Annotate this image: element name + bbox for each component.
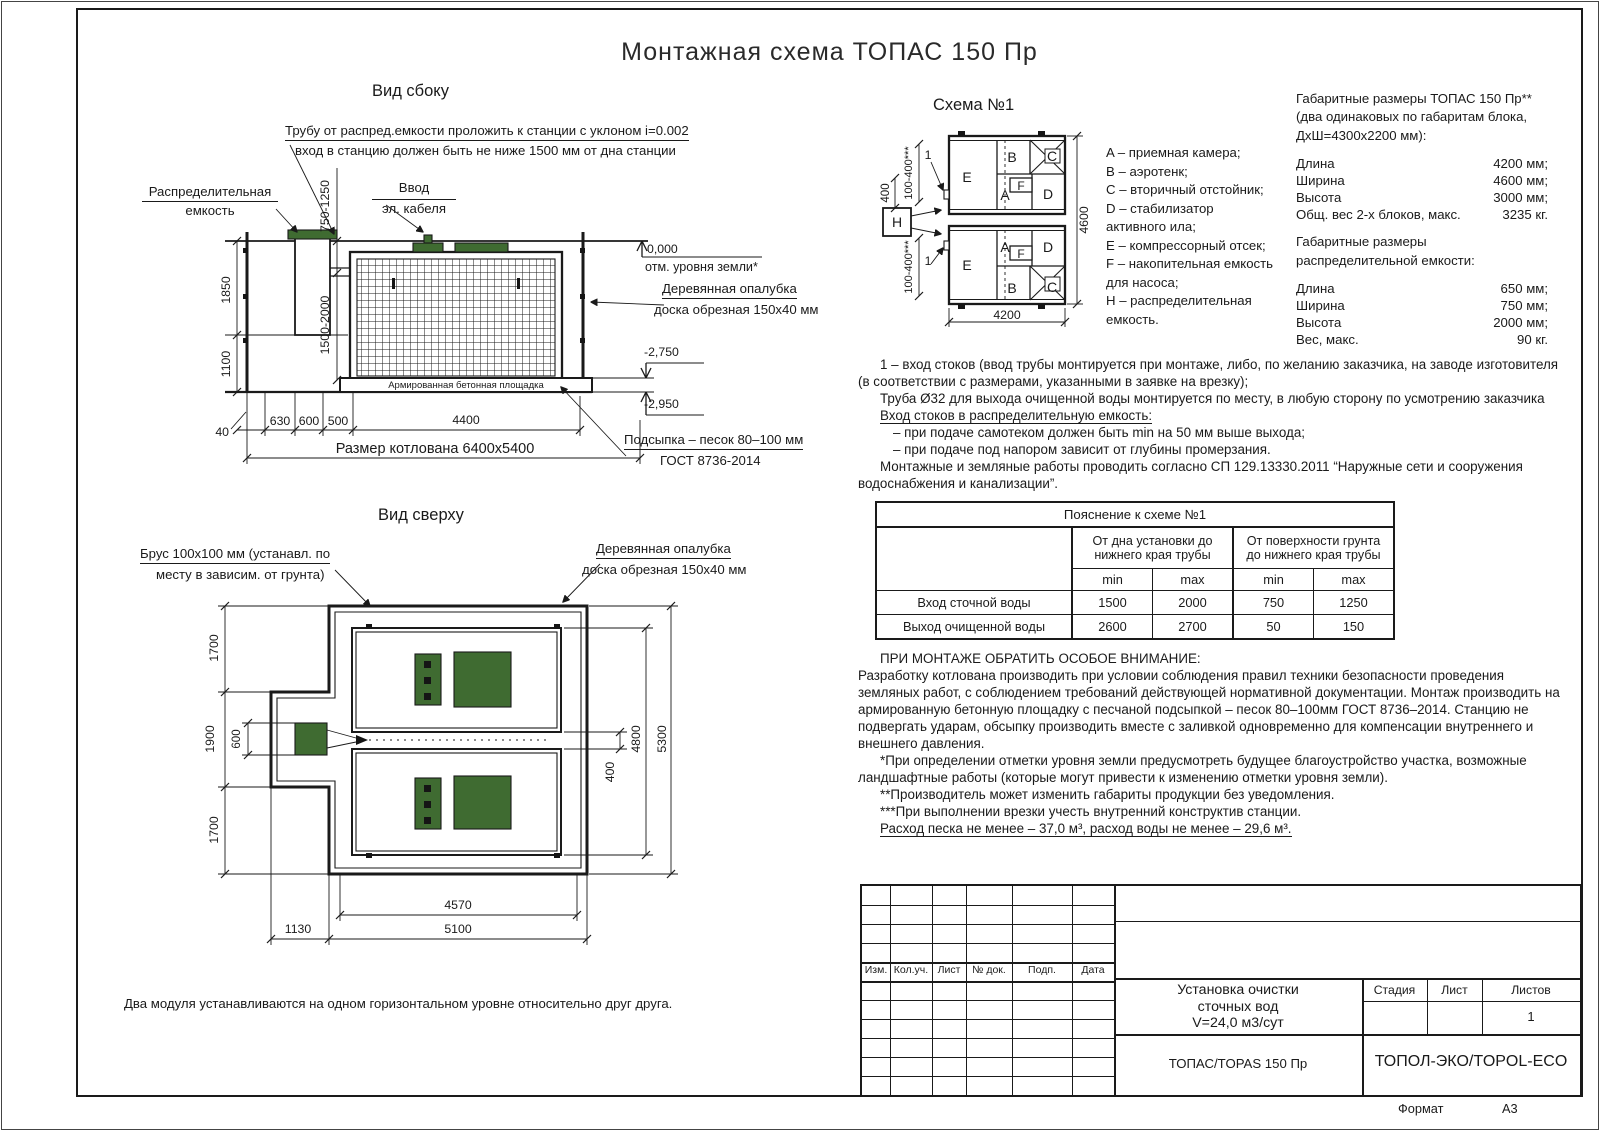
sheet-label: Лист xyxy=(1427,983,1482,997)
rev-header-izm: Изм. xyxy=(862,964,890,976)
attention-heading: ПРИ МОНТАЖЕ ОБРАТИТЬ ОСОБОЕ ВНИМАНИЕ: xyxy=(858,650,1566,667)
top-view: 1700 1900 600 1700 400 4800 5300 4570 51… xyxy=(130,540,810,960)
dist-tank-label-line1: Распределительная xyxy=(142,184,278,202)
room-B-top: B xyxy=(1007,149,1016,165)
dim-1900: 1900 xyxy=(203,725,217,753)
dim-1500-2000: 1500-2000 xyxy=(318,295,332,354)
elevation-2750: -2,750 xyxy=(644,345,679,360)
dim-500: 500 xyxy=(328,414,349,428)
label-H: H xyxy=(892,214,902,230)
spec-row: Ширина750 мм; xyxy=(1296,297,1548,314)
spec-label: Ширина xyxy=(1296,297,1345,314)
table-group1-header: От дна установки до нижнего края трубы xyxy=(1072,527,1233,569)
spec-row: Вес, макс.90 кг. xyxy=(1296,331,1548,348)
format-label: Формат xyxy=(1398,1101,1443,1116)
footnote-1: *При определении отметки уровня земли пр… xyxy=(858,752,1566,786)
room-C-bottom: C xyxy=(1047,279,1057,295)
cell-value: 1250 xyxy=(1314,591,1395,615)
table-corner-cell xyxy=(876,527,1072,591)
table-title: Пояснение к схеме №1 xyxy=(876,502,1394,527)
pit-size-label: Размер котлована 6400х5400 xyxy=(336,441,535,457)
cable-entry-label-line1: Ввод xyxy=(382,180,446,196)
cell-value: 2700 xyxy=(1153,615,1234,640)
cell-value: 2600 xyxy=(1072,615,1153,640)
legend-line: B – аэротенк; xyxy=(1106,163,1326,182)
cable-entry-label-line2: эл. кабеля xyxy=(372,199,456,217)
scheme-legend: A – приемная камера; B – аэротенк; C – в… xyxy=(1106,144,1326,329)
bedding-label-line1: Подсыпка – песок 80–100 мм xyxy=(624,432,803,450)
cell-value: 750 xyxy=(1233,591,1314,615)
table-max1: max xyxy=(1153,569,1234,591)
dim-4600: 4600 xyxy=(1077,206,1091,234)
legend-line: для насоса; xyxy=(1106,274,1326,293)
spec-row: Общ. вес 2-х блоков, макс.3235 кг. xyxy=(1296,206,1548,223)
table-min2: min xyxy=(1233,569,1314,591)
overall-dimensions: Габаритные размеры ТОПАС 150 Пр** (два о… xyxy=(1296,90,1548,348)
spec-label: Вес, макс. xyxy=(1296,331,1359,348)
overall-title-line2: (два одинаковых по габаритам блока, xyxy=(1296,108,1548,126)
dim-400: 400 xyxy=(603,762,617,783)
rev-header-data: Дата xyxy=(1072,964,1114,976)
dim-1700-top: 1700 xyxy=(207,634,221,662)
sheets-label: Листов xyxy=(1482,983,1580,997)
inlet-1-top: 1 xyxy=(925,148,932,162)
spec-label: Высота xyxy=(1296,314,1341,331)
dim-1130: 1130 xyxy=(285,922,312,936)
formwork-label-line2: доска обрезная 150х40 мм xyxy=(654,302,818,318)
dim-100-400-top: 100-400*** xyxy=(903,146,915,200)
spec-row: Ширина4600 мм; xyxy=(1296,172,1548,189)
inlet-item-1: – при подаче самотеком должен быть min н… xyxy=(858,424,1566,441)
scheme-explanation-table: Пояснение к схеме №1 От дна установки до… xyxy=(875,501,1395,640)
room-C-top: C xyxy=(1047,148,1057,164)
top-formwork-label-line1: Деревянная опалубка xyxy=(596,541,731,559)
format-value: А3 xyxy=(1502,1101,1518,1116)
dist-tank-label-line2: емкость xyxy=(142,203,278,219)
legend-line: E – компрессорный отсек; xyxy=(1106,237,1326,256)
spec-label: Длина xyxy=(1296,280,1335,297)
spec-row: Длина650 мм; xyxy=(1296,280,1548,297)
pipe-note-line2: вход в станцию должен быть не ниже 1500 … xyxy=(295,143,676,159)
top-view-heading: Вид сверху xyxy=(378,506,464,525)
spec-row: Длина4200 мм; xyxy=(1296,155,1548,172)
table-max2: max xyxy=(1314,569,1395,591)
room-D-bottom: D xyxy=(1043,239,1053,255)
legend-line: C – вторичный отстойник; xyxy=(1106,181,1326,200)
consumption-note: Расход песка не менее – 37,0 м³, расход … xyxy=(880,820,1566,837)
rev-header-ndok: № док. xyxy=(966,964,1012,976)
room-D-top: D xyxy=(1043,186,1053,202)
legend-line: активного ила; xyxy=(1106,218,1326,237)
company-name: ТОПОЛ-ЭКО/TOPOL-ECO xyxy=(1362,1053,1580,1071)
note-outlet-para: Труба Ø32 для выхода очищенной воды монт… xyxy=(858,390,1566,407)
table-min1: min xyxy=(1072,569,1153,591)
spec-row: Высота3000 мм; xyxy=(1296,189,1548,206)
sp-standard-para: Монтажные и земляные работы проводить со… xyxy=(858,458,1566,492)
top-view-structure xyxy=(271,606,587,874)
row-label: Выход очищенной воды xyxy=(876,615,1072,640)
table-row: Вход сточной воды 1500 2000 750 1250 xyxy=(876,591,1394,615)
dim-750-1250: 750-1250 xyxy=(318,180,332,232)
footnote-2: **Производитель может изменить габариты … xyxy=(858,786,1566,803)
spec-value: 3235 кг. xyxy=(1502,206,1548,223)
spec-row: Высота2000 мм; xyxy=(1296,314,1548,331)
drawing-sheet: Монтажная схема ТОПАС 150 Пр Вид сбоку В… xyxy=(0,0,1600,1131)
spec-value: 90 кг. xyxy=(1517,331,1548,348)
spec-label: Высота xyxy=(1296,189,1341,206)
rev-header-koluch: Кол.уч. xyxy=(890,964,932,976)
rev-header-podp: Подп. xyxy=(1012,964,1072,976)
dim-600: 600 xyxy=(231,729,243,748)
table-row: Выход очищенной воды 2600 2700 50 150 xyxy=(876,615,1394,640)
spec-label: Общ. вес 2-х блоков, макс. xyxy=(1296,206,1461,223)
row-label: Вход сточной воды xyxy=(876,591,1072,615)
spec-value: 4600 мм; xyxy=(1493,172,1548,189)
scheme-1: E B C A F D E A F D B C H 1 1 400 100-40… xyxy=(855,112,1125,347)
cell-value: 50 xyxy=(1233,615,1314,640)
top-view-drawing: 1700 1900 600 1700 400 4800 5300 4570 51… xyxy=(130,540,810,960)
elevation-2950: -2,950 xyxy=(644,397,679,412)
tank-dims-title-line2: распределительной емкости: xyxy=(1296,252,1548,270)
doc-title-line3: V=24,0 м3/сут xyxy=(1116,1015,1360,1032)
elevation-zero: 0,000 xyxy=(647,242,678,257)
dim-4570: 4570 xyxy=(444,898,472,912)
dim-1100: 1100 xyxy=(219,351,233,378)
room-B-bottom: B xyxy=(1007,280,1016,296)
spec-label: Длина xyxy=(1296,155,1335,172)
beam-label-line2: месту в зависим. от грунта) xyxy=(156,567,324,583)
tank-dims-title-line1: Габаритные размеры xyxy=(1296,233,1548,251)
notes-column: 1 – вход стоков (ввод трубы монтируется … xyxy=(858,356,1566,837)
overall-title-line1: Габаритные размеры ТОПАС 150 Пр** xyxy=(1296,90,1548,108)
ground-level-note: отм. уровня земли* xyxy=(645,260,758,275)
legend-line: емкость. xyxy=(1106,311,1326,330)
dim-40: 40 xyxy=(215,425,229,439)
product-name: ТОПАС/TOPAS 150 Пр xyxy=(1114,1056,1362,1071)
spec-label: Ширина xyxy=(1296,172,1345,189)
overall-title-line3: ДхШ=4300х2200 мм): xyxy=(1296,127,1548,145)
dim-5300: 5300 xyxy=(655,725,669,753)
spec-value: 750 мм; xyxy=(1501,297,1548,314)
side-view: 1850 1100 750-1250 1500-2000 40 630 600 … xyxy=(130,118,850,468)
legend-line: A – приемная камера; xyxy=(1106,144,1326,163)
dim-4800: 4800 xyxy=(629,725,643,753)
top-formwork-label-line2: доска обрезная 150х40 мм xyxy=(582,562,746,578)
rev-header-list: Лист xyxy=(932,964,966,976)
drawing-title: Монтажная схема ТОПАС 150 Пр xyxy=(76,38,1583,67)
dim-1700-bottom: 1700 xyxy=(207,816,221,844)
note-inlet-para: 1 – вход стоков (ввод трубы монтируется … xyxy=(858,356,1566,390)
room-F-bottom: F xyxy=(1017,247,1024,261)
dim-630: 630 xyxy=(270,414,291,428)
room-E-bottom: E xyxy=(962,257,971,273)
side-view-heading: Вид сбоку xyxy=(372,82,449,101)
legend-line: D – стабилизатор xyxy=(1106,200,1326,219)
dim-4200: 4200 xyxy=(993,308,1021,322)
room-F-top: F xyxy=(1017,179,1024,193)
legend-line: F – накопительная емкость xyxy=(1106,255,1326,274)
formwork-label-line1: Деревянная опалубка xyxy=(662,281,797,299)
dim-4400: 4400 xyxy=(452,413,480,427)
inlet-item-2: – при подаче под напором зависит от глуб… xyxy=(858,441,1566,458)
table-group2-header: От поверхности грунта до нижнего края тр… xyxy=(1233,527,1394,569)
dim-600: 600 xyxy=(299,414,320,428)
room-A-bottom: A xyxy=(1000,239,1010,255)
dim-400-scheme: 400 xyxy=(880,183,892,202)
stage-label: Стадия xyxy=(1362,983,1427,997)
inlet-1-bottom: 1 xyxy=(925,254,932,268)
doc-title-line2: сточных вод xyxy=(1116,999,1360,1016)
side-view-structure xyxy=(225,230,654,392)
pipe-note-line1: Трубу от распред.емкости проложить к ста… xyxy=(285,123,689,141)
spec-value: 3000 мм; xyxy=(1493,189,1548,206)
spec-value: 4200 мм; xyxy=(1493,155,1548,172)
spec-value: 650 мм; xyxy=(1501,280,1548,297)
modules-note: Два модуля устанавлива­ются на одном гор… xyxy=(124,996,672,1011)
attention-body: Разработку котлована производить при усл… xyxy=(858,667,1566,752)
concrete-pad-label: Армированная бетонная площадка xyxy=(388,380,544,391)
doc-title-line1: Установка очистки xyxy=(1116,982,1360,999)
room-A-top: A xyxy=(1000,187,1010,203)
cell-value: 1500 xyxy=(1072,591,1153,615)
cell-value: 2000 xyxy=(1153,591,1234,615)
dim-1850: 1850 xyxy=(219,276,233,304)
dim-5100: 5100 xyxy=(444,922,472,936)
legend-line: H – распределительная xyxy=(1106,292,1326,311)
footnote-3: ***При выполнении врезки учесть внутренн… xyxy=(858,803,1566,820)
bedding-label-line2: ГОСТ 8736-2014 xyxy=(660,453,761,469)
doc-title: Установка очистки сточных вод V=24,0 м3/… xyxy=(1116,982,1360,1032)
inlet-heading-text: Вход стоков в распределительную емкость: xyxy=(880,408,1152,424)
consumption-text: Расход песка не менее – 37,0 м³, расход … xyxy=(880,821,1292,837)
inlet-heading: Вход стоков в распределительную емкость: xyxy=(880,407,1566,424)
spec-value: 2000 мм; xyxy=(1493,314,1548,331)
top-view-leaders xyxy=(335,564,600,606)
room-E-top: E xyxy=(962,169,971,185)
sheets-value: 1 xyxy=(1482,1009,1580,1024)
scheme-drawing: E B C A F D E A F D B C H 1 1 400 100-40… xyxy=(855,112,1125,347)
title-block: Изм. Кол.уч. Лист № док. Подп. Дата Уста… xyxy=(860,884,1582,1097)
dim-100-400-bottom: 100-400*** xyxy=(903,240,915,294)
cell-value: 150 xyxy=(1314,615,1395,640)
beam-label-line1: Брус 100х100 мм (устанавл. по xyxy=(140,546,330,564)
